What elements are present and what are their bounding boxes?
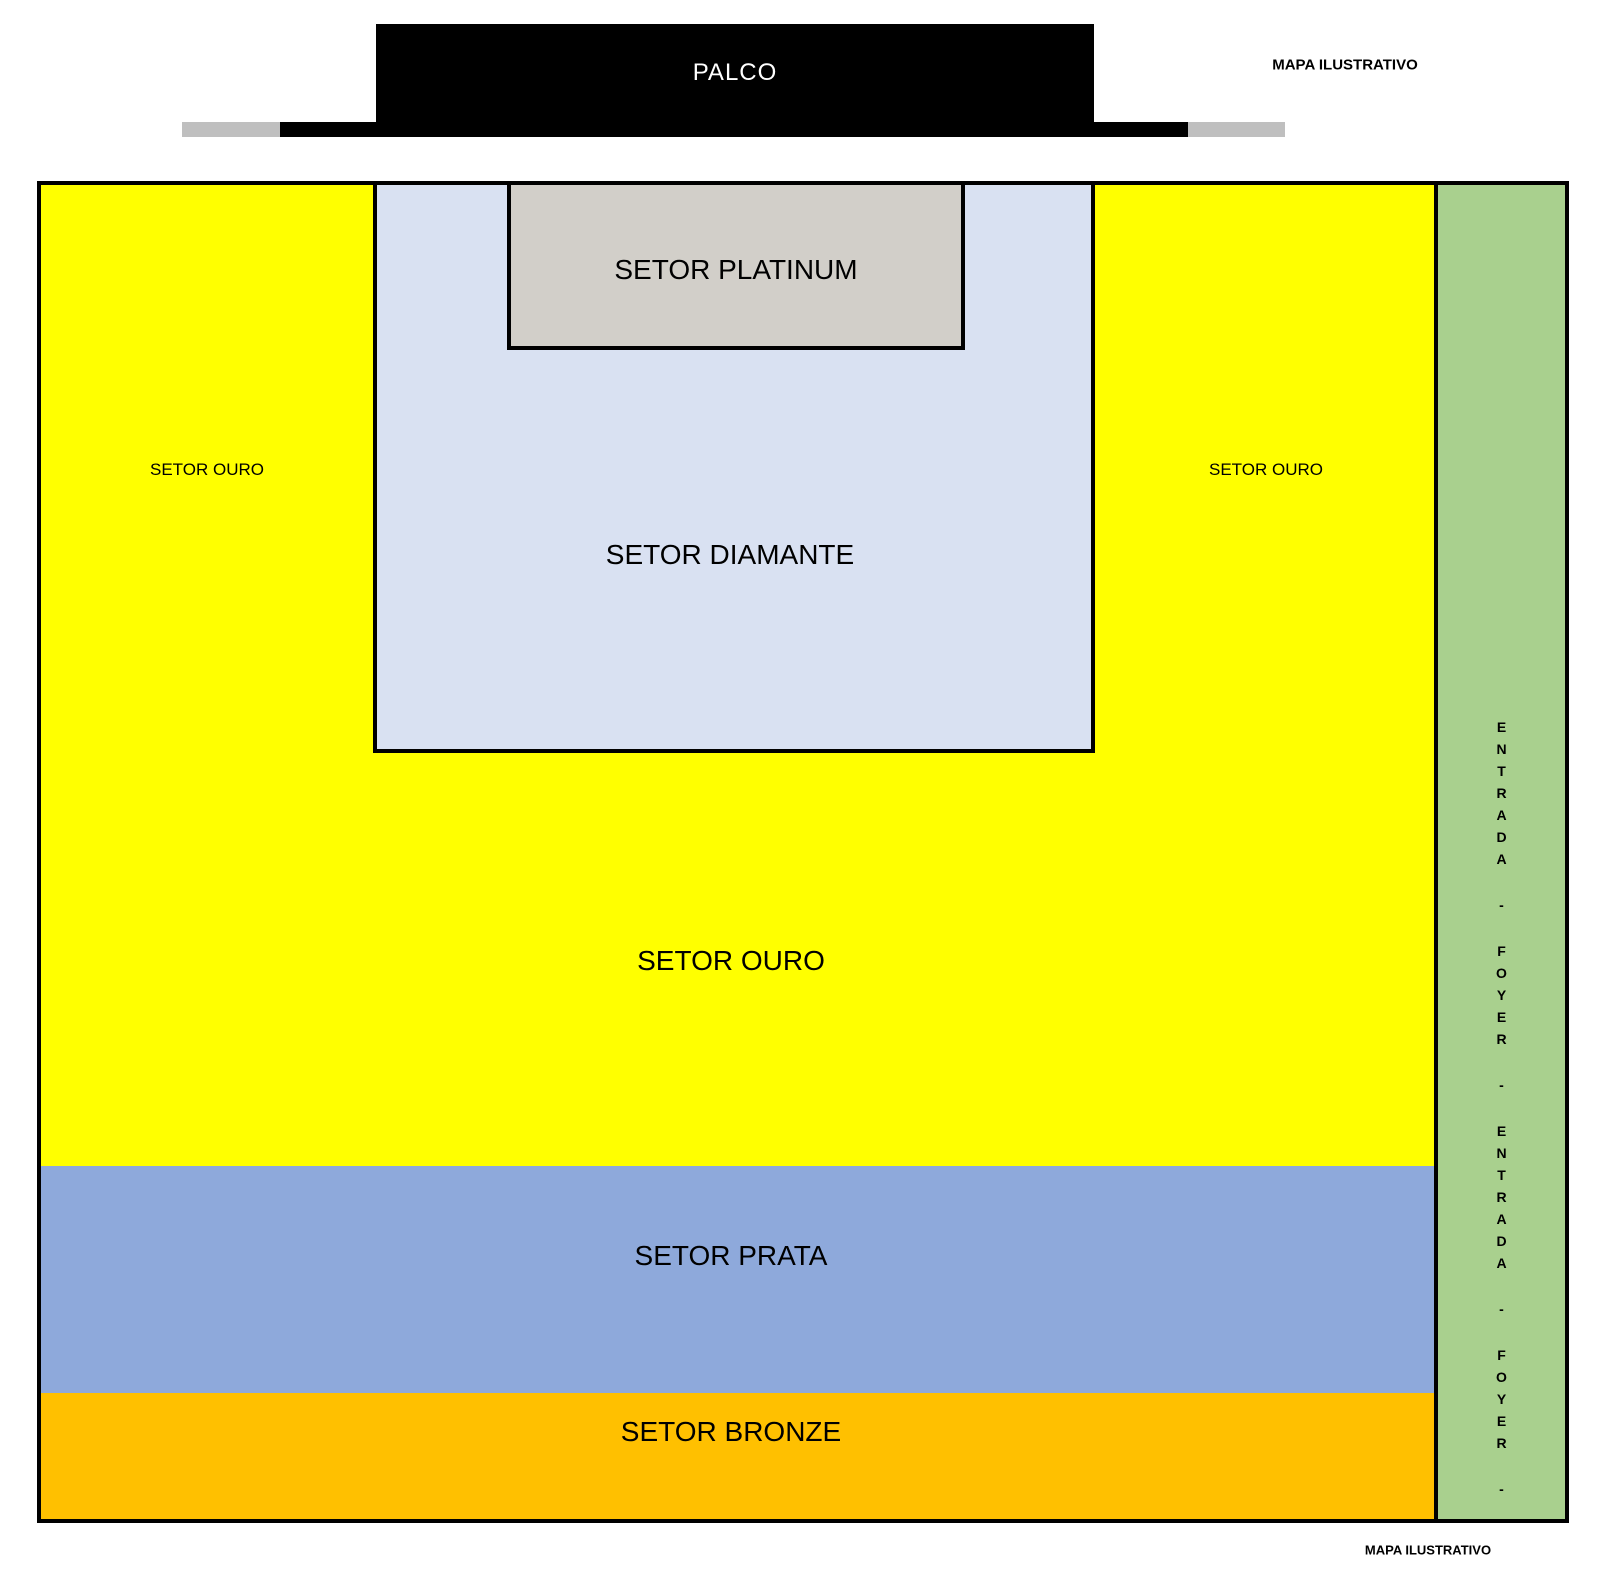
stage-wing-left [182, 122, 280, 137]
entrance-foyer-letter: O [1496, 1366, 1507, 1388]
sector-ouro-label: SETOR OURO [637, 945, 825, 977]
entrance-foyer-letter: Y [1497, 1388, 1506, 1410]
entrance-foyer-letter: R [1496, 1028, 1506, 1050]
entrance-foyer-letter: F [1497, 940, 1506, 962]
sector-platinum-label: SETOR PLATINUM [614, 254, 857, 286]
entrance-foyer-letter: R [1496, 1186, 1506, 1208]
entrance-foyer-letter: Y [1497, 984, 1506, 1006]
entrance-foyer-letter: - [1499, 1074, 1504, 1096]
sector-bronze-label: SETOR BRONZE [621, 1416, 841, 1448]
entrance-foyer-letter: E [1497, 716, 1506, 738]
entrance-foyer-letter: E [1497, 1006, 1506, 1028]
sector-ouro-left-label: SETOR OURO [150, 460, 264, 480]
sector-diamante-label: SETOR DIAMANTE [606, 539, 854, 571]
entrance-foyer-letter: R [1496, 1432, 1506, 1454]
entrance-foyer-letter: N [1496, 1142, 1506, 1164]
entrance-foyer-letter: E [1497, 1120, 1506, 1142]
entrance-foyer-letter: A [1496, 804, 1506, 826]
entrance-foyer-letter: T [1497, 1164, 1506, 1186]
entrance-foyer-letter: A [1496, 1252, 1506, 1274]
illustrative-map-note-top: MAPA ILUSTRATIVO [1272, 57, 1418, 74]
sector-ouro-right-label: SETOR OURO [1209, 460, 1323, 480]
entrance-foyer-letter: T [1497, 760, 1506, 782]
entrance-foyer-letter: O [1496, 962, 1507, 984]
sector-prata-area [41, 1166, 1434, 1393]
entrance-foyer-vertical-label: ENTRADA-FOYER-ENTRADA-FOYER- [1438, 716, 1565, 1524]
illustrative-map-note-bottom: MAPA ILUSTRATIVO [1365, 1543, 1491, 1558]
stage-label: PALCO [693, 59, 778, 87]
entrance-foyer-letter: E [1497, 1410, 1506, 1432]
venue-map: ENTRADA-FOYER-ENTRADA-FOYER- SETOR PLATI… [37, 181, 1569, 1523]
sector-bronze-area [41, 1393, 1434, 1519]
entrance-foyer-letter: R [1496, 782, 1506, 804]
entrance-foyer-letter: D [1496, 826, 1506, 848]
entrance-foyer-letter: A [1496, 848, 1506, 870]
entrance-foyer-letter: D [1496, 1230, 1506, 1252]
entrance-foyer-letter: N [1496, 738, 1506, 760]
sector-prata-label: SETOR PRATA [635, 1240, 828, 1272]
entrance-foyer-letter: - [1499, 894, 1504, 916]
entrance-foyer-letter: - [1499, 1298, 1504, 1320]
stage: PALCO [376, 24, 1094, 122]
entrance-foyer-strip: ENTRADA-FOYER-ENTRADA-FOYER- [1434, 185, 1565, 1519]
stage-apron [280, 122, 1188, 137]
venue-seating-map-page: PALCO MAPA ILUSTRATIVO ENTRADA-FOYER-ENT… [0, 0, 1599, 1576]
stage-wing-right [1188, 122, 1285, 137]
entrance-foyer-letter: - [1499, 1478, 1504, 1500]
entrance-foyer-letter: F [1497, 1344, 1506, 1366]
entrance-foyer-letter: A [1496, 1208, 1506, 1230]
